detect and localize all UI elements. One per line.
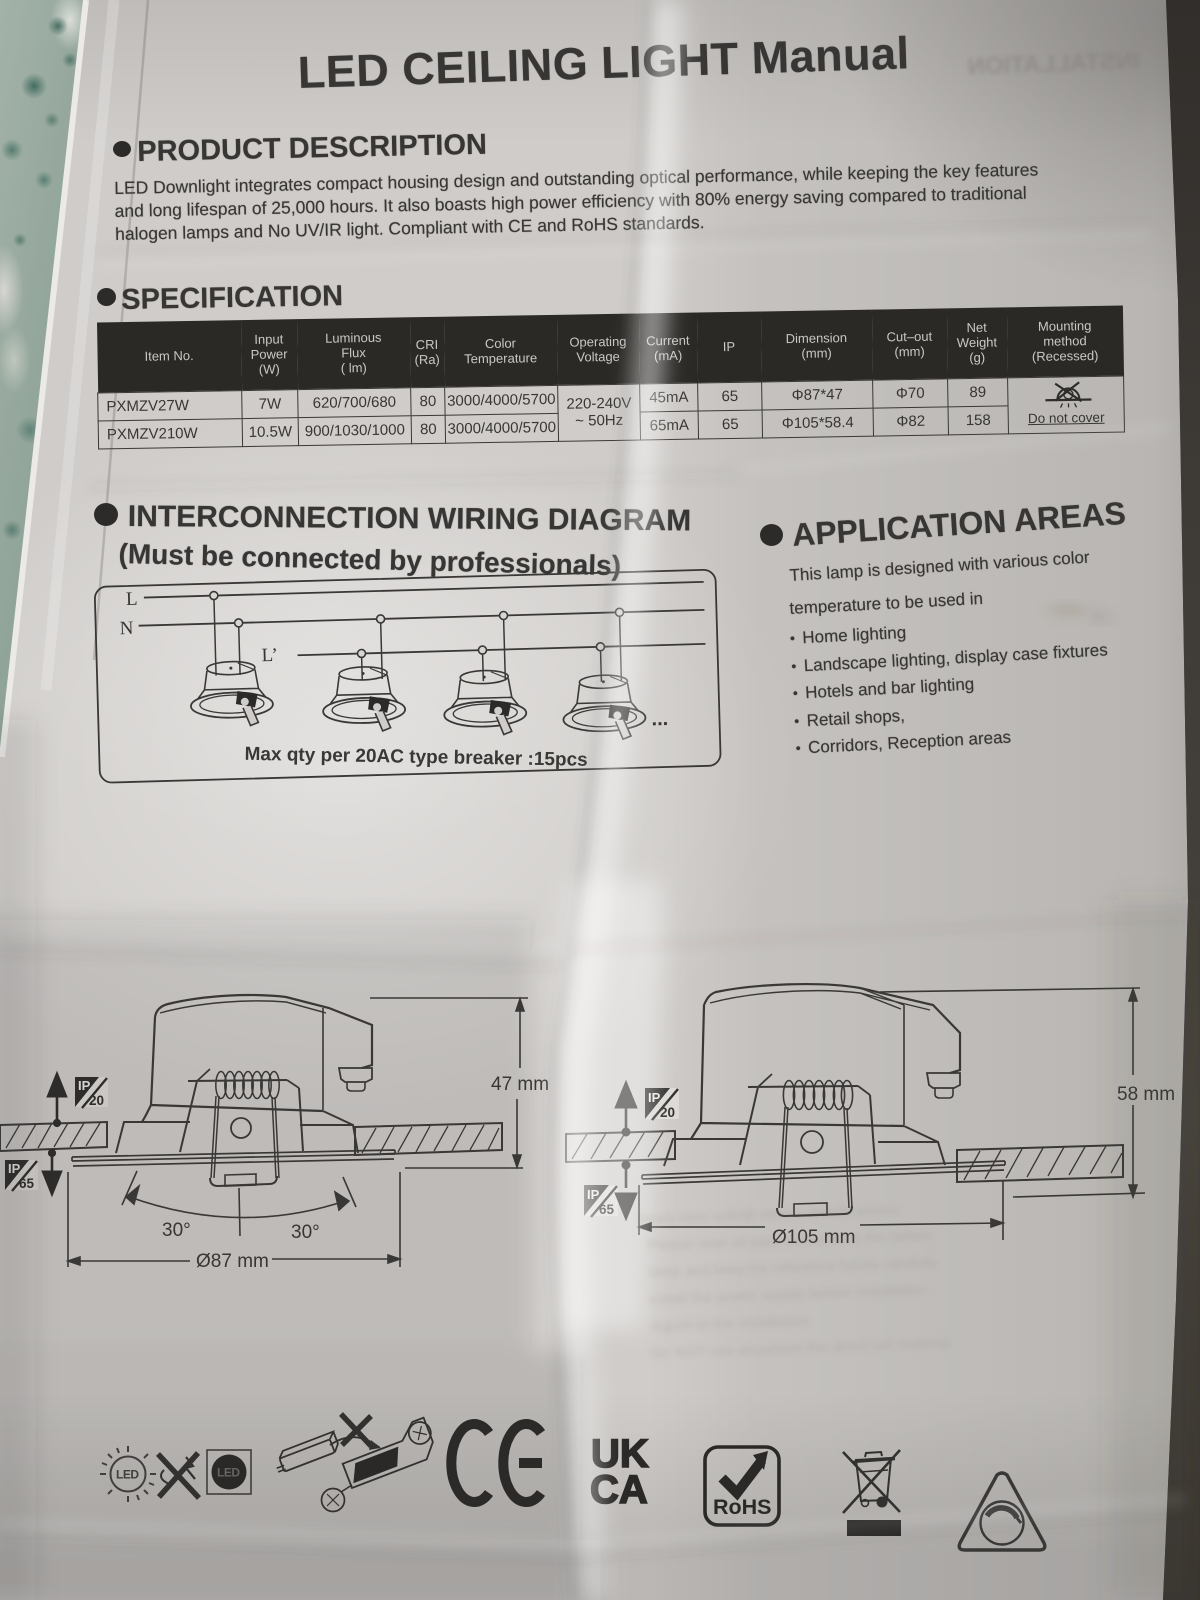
svg-text:30°: 30° [291,1222,320,1243]
svg-text:IP: IP [587,1187,600,1202]
svg-text:CA: CA [590,1468,648,1512]
svg-text:IP: IP [78,1078,91,1093]
svg-text:...: ... [651,708,668,730]
svg-text:N: N [119,618,134,639]
svg-text:IP: IP [8,1161,21,1176]
svg-text:L’: L’ [261,645,278,666]
svg-text:Max qty per 20AC type breaker: Max qty per 20AC type breaker :15pcs [244,744,588,771]
svg-text:65: 65 [599,1202,615,1217]
svg-text:LED: LED [217,1466,240,1480]
svg-text:20: 20 [660,1105,675,1120]
svg-text:IP: IP [648,1090,661,1105]
svg-text:20: 20 [89,1093,104,1108]
svg-text:LED: LED [116,1468,139,1482]
svg-text:RoHS: RoHS [713,1495,772,1519]
svg-text:30°: 30° [162,1220,191,1241]
svg-text:Ø87 mm: Ø87 mm [196,1251,269,1272]
svg-text:65: 65 [19,1176,35,1191]
svg-text:L: L [126,589,138,610]
svg-text:47 mm: 47 mm [491,1074,549,1095]
svg-text:58 mm: 58 mm [1117,1084,1175,1105]
